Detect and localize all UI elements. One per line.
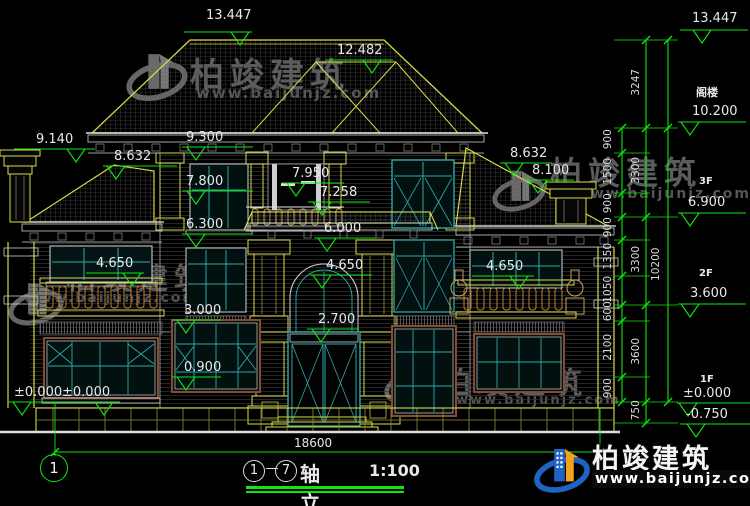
title-underline [246,486,404,489]
cad-elevation-canvas: 柏竣建筑 www.baijunjz.com 柏竣建筑 www.baijunjz.… [0,0,750,506]
dim-label-total-width: 18600 [294,437,332,449]
level-label: 7.258 [320,186,357,199]
level-label: 4.650 [96,257,133,270]
level-label: 8.100 [532,164,569,177]
axis-bubble-1: 1 [40,454,68,482]
f1-window-left [172,320,260,392]
main-roof [92,40,482,133]
level-label: 6.900 [688,196,725,209]
dim-label-total-height: 10200 [651,242,662,286]
level-label: 12.482 [337,44,383,57]
level-label: ±0.000 [62,386,110,399]
level-label: -0.750 [686,408,728,421]
axis-circle-to: 7 [275,460,297,482]
brand-url: www.baijunjz.com [592,470,750,488]
dim-label: 750 [631,388,642,432]
dim-label: 2100 [603,325,614,369]
title-text: 轴立面图 [300,458,321,506]
level-label: 4.650 [486,260,523,273]
left-chimney [0,150,40,222]
level-label: 4.650 [326,259,363,272]
right-wing-vent-grille [474,322,564,332]
baijun-logo-icon [534,437,590,499]
baijun-logo-block: 柏竣建筑 www.baijunjz.com [534,433,750,503]
left-wing-roof [20,165,164,242]
level-label: 3.600 [690,287,727,300]
level-label: 6.300 [186,218,223,231]
level-label: 6.000 [324,222,361,235]
right-wing-f1-window [474,334,564,392]
level-label: 10.200 [692,105,738,118]
floor-tag-attic: 阁楼 [696,84,718,100]
level-label: 7.950 [292,167,329,180]
dim-label: 3300 [631,237,642,281]
level-label: 2.700 [318,313,355,326]
floor-tag-1f: 1F [700,374,714,385]
dim-label: 3300 [631,148,642,192]
level-label: 8.632 [510,147,547,160]
level-label: 13.447 [692,12,738,25]
level-label: 3.000 [184,304,221,317]
axis-circle-from: 1 [243,460,265,482]
title-underline-2 [246,491,404,493]
level-label: 9.140 [36,133,73,146]
dimension-ticks [618,36,672,427]
left-wing-vent-grille [40,322,162,334]
level-label: ±0.000 [683,387,731,400]
dim-label: 3247 [631,60,642,104]
f2-window-right [394,240,454,312]
floor-tag-2f: 2F [699,268,713,279]
dimension-chain-lines [614,40,678,423]
level-label: ±0.000 [14,386,62,399]
dim-label: 900 [603,366,614,410]
level-label: 0.900 [184,361,221,374]
level-label: 8.632 [114,150,151,163]
level-label: 13.447 [206,9,252,22]
floor-tag-3f: 3F [699,176,713,187]
dim-label: 3600 [631,329,642,373]
f1-window-center-right [392,326,456,416]
building-facade [0,40,620,432]
title-scale: 1:100 [369,461,420,480]
level-label: 7.800 [186,175,223,188]
level-label: 9.300 [186,131,223,144]
